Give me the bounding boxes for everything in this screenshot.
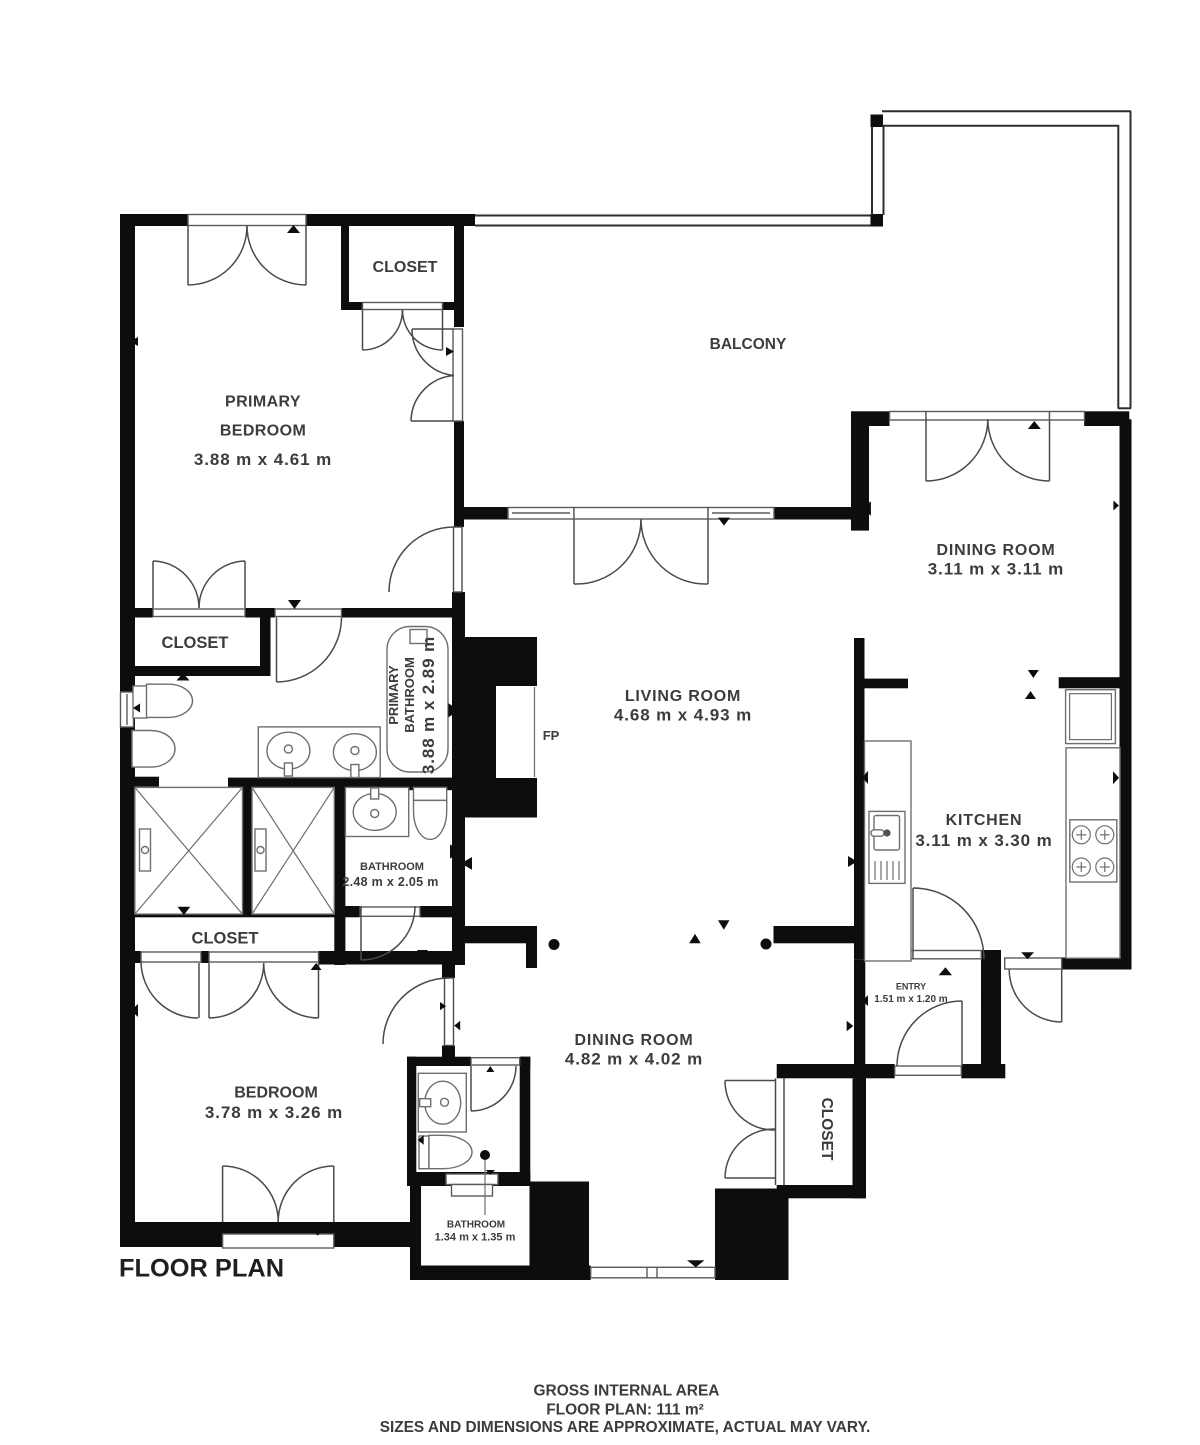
svg-text:3.78 m x 3.26 m: 3.78 m x 3.26 m <box>205 1103 343 1122</box>
svg-text:CLOSET: CLOSET <box>818 1098 835 1161</box>
svg-text:3.88 m x 4.61 m: 3.88 m x 4.61 m <box>194 450 332 469</box>
svg-text:BALCONY: BALCONY <box>710 336 787 353</box>
svg-text:BATHROOM: BATHROOM <box>360 861 424 873</box>
svg-text:LIVING ROOM: LIVING ROOM <box>625 688 741 705</box>
svg-text:BEDROOM: BEDROOM <box>220 423 306 440</box>
svg-text:4.82 m x 4.02 m: 4.82 m x 4.02 m <box>565 1050 703 1069</box>
svg-text:FLOOR PLAN: FLOOR PLAN <box>119 1255 284 1283</box>
svg-text:BEDROOM: BEDROOM <box>234 1085 318 1102</box>
svg-text:PRIMARY: PRIMARY <box>225 394 301 411</box>
svg-text:KITCHEN: KITCHEN <box>946 812 1023 829</box>
svg-text:PRIMARY: PRIMARY <box>386 665 401 725</box>
svg-text:1.51 m x 1.20 m: 1.51 m x 1.20 m <box>874 994 947 1005</box>
svg-text:CLOSET: CLOSET <box>162 634 229 652</box>
svg-text:FP: FP <box>543 728 560 743</box>
svg-text:FLOOR PLAN: 111 m²: FLOOR PLAN: 111 m² <box>546 1402 704 1419</box>
svg-text:2.48 m x 2.05 m: 2.48 m x 2.05 m <box>342 875 438 889</box>
svg-text:CLOSET: CLOSET <box>192 930 259 948</box>
svg-text:3.88 m x 2.89 m: 3.88 m x 2.89 m <box>419 636 438 774</box>
svg-text:DINING ROOM: DINING ROOM <box>574 1032 693 1049</box>
svg-text:CLOSET: CLOSET <box>373 259 438 276</box>
svg-text:DINING ROOM: DINING ROOM <box>936 542 1055 559</box>
svg-text:1.34 m x 1.35 m: 1.34 m x 1.35 m <box>435 1232 516 1244</box>
svg-text:SIZES AND DIMENSIONS ARE APPRO: SIZES AND DIMENSIONS ARE APPROXIMATE, AC… <box>380 1419 871 1436</box>
svg-text:BATHROOM: BATHROOM <box>402 657 417 733</box>
svg-text:BATHROOM: BATHROOM <box>447 1220 505 1231</box>
svg-text:3.11 m x 3.30 m: 3.11 m x 3.30 m <box>915 831 1052 850</box>
svg-text:ENTRY: ENTRY <box>896 982 926 992</box>
svg-text:3.11 m x 3.11 m: 3.11 m x 3.11 m <box>928 560 1064 579</box>
svg-text:GROSS INTERNAL AREA: GROSS INTERNAL AREA <box>533 1383 719 1400</box>
svg-text:4.68 m x 4.93 m: 4.68 m x 4.93 m <box>614 706 752 725</box>
